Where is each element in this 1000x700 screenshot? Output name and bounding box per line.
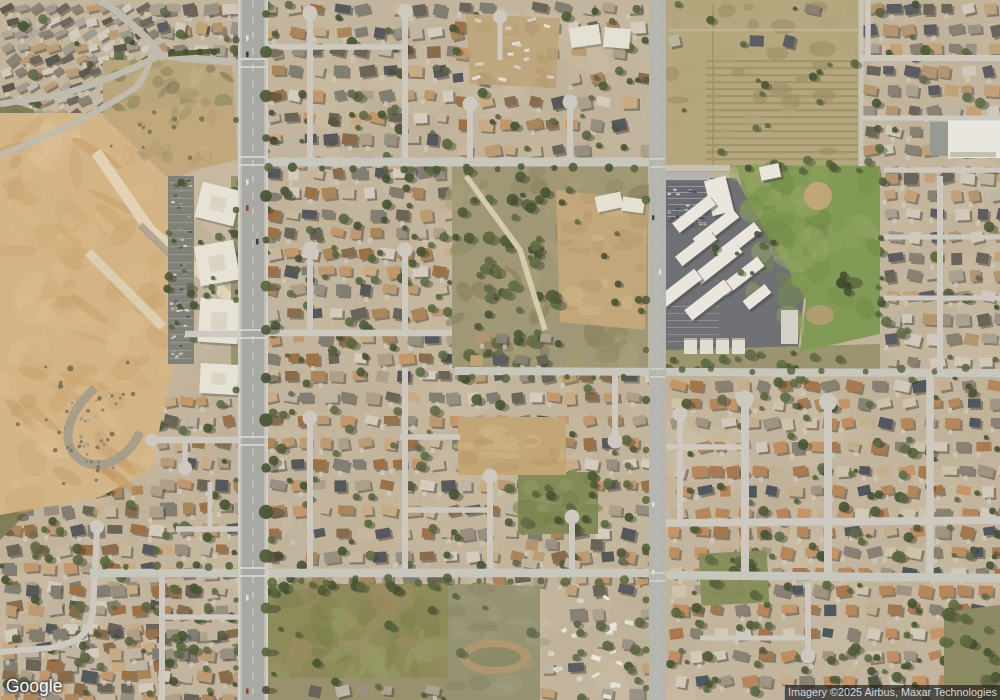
svg-text:Google: Google (6, 676, 62, 696)
svg-text:Imagery ©2025 Airbus, Maxar Te: Imagery ©2025 Airbus, Maxar Technologies (788, 686, 997, 698)
